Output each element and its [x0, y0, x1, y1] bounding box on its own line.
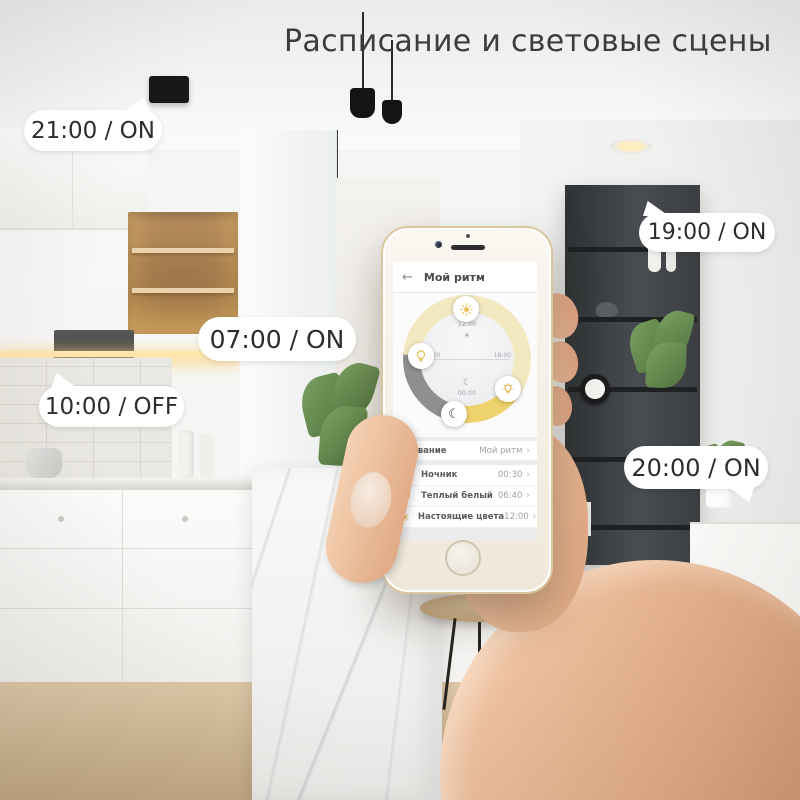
scene-time: 00:30 [498, 470, 523, 480]
home-button[interactable] [445, 540, 481, 576]
pendant-light-2 [382, 100, 402, 124]
countertop [0, 478, 252, 490]
phone-screen: ← Мой ритм 12:00 ☀ 06:00 18:00 ☾ 00:00 [393, 262, 537, 540]
chevron-right-icon: › [526, 446, 530, 456]
sun-icon [460, 303, 473, 316]
scene-time: 12:00 [504, 512, 529, 522]
list-footer [393, 528, 537, 540]
app-header: ← Мой ритм [393, 262, 537, 293]
counter-jar [178, 430, 194, 478]
scene-row-true-colors[interactable]: ☀ Настоящие цвета 12:00 › [393, 507, 537, 528]
scene-label: Настоящие цвета [418, 512, 504, 522]
callout-2100: 21:00 / ON [24, 110, 162, 151]
ceiling-spot-light [149, 76, 189, 103]
phone: ← Мой ритм 12:00 ☀ 06:00 18:00 ☾ 00:00 [381, 226, 553, 594]
bulb-icon [415, 350, 427, 362]
dial-knob-warm-white[interactable] [408, 343, 434, 369]
dial-horizon-line [424, 359, 510, 360]
sun-icon: ☀ [420, 331, 514, 340]
name-value: Мой ритм [479, 446, 522, 456]
callout-2000: 20:00 / ON [624, 446, 768, 489]
promo-image: ← Мой ритм 12:00 ☀ 06:00 18:00 ☾ 00:00 [0, 0, 800, 800]
chevron-right-icon: › [533, 512, 537, 522]
bulb-rays-icon [502, 383, 514, 395]
chevron-right-icon: › [526, 491, 530, 501]
scene-row-warm-white[interactable]: Теплый белый 06:40 › [393, 486, 537, 507]
callout-label: 19:00 / ON [648, 220, 767, 245]
thumb-nail [345, 468, 396, 531]
drawer-knob [182, 516, 188, 522]
pendant-light [350, 88, 375, 118]
app-title: Мой ритм [424, 271, 485, 284]
kettle [26, 448, 62, 478]
chevron-right-icon: › [526, 470, 530, 480]
dial-knob-true-colors[interactable] [453, 296, 479, 322]
drawer-line [0, 548, 252, 549]
proximity-sensor [466, 234, 470, 238]
callout-1900: 19:00 / ON [639, 213, 775, 252]
shelf-board [132, 288, 234, 293]
counter-jar [200, 434, 214, 478]
scene-label: Теплый белый [421, 491, 498, 501]
scene-label: Ночник [421, 470, 498, 480]
dial-label-evening: 18:00 [494, 352, 511, 359]
drawer-line [0, 608, 252, 609]
base-cabinets [0, 490, 252, 686]
dial-knob-evening[interactable] [495, 376, 521, 402]
dial-label-noon: 12:00 [420, 321, 514, 328]
callout-label: 07:00 / ON [210, 325, 345, 354]
callout-label: 21:00 / ON [31, 118, 155, 144]
alarm-clock [580, 374, 610, 404]
callout-0700: 07:00 / ON [198, 317, 356, 361]
dial-knob-night-light[interactable]: ☾ [441, 401, 467, 427]
bird-figurine [596, 302, 618, 317]
drawer-knob [58, 516, 64, 522]
callout-label: 10:00 / OFF [45, 394, 178, 420]
callout-label: 20:00 / ON [631, 454, 760, 482]
cabinet-seam [122, 490, 123, 686]
scene-time: 06:40 [498, 491, 523, 501]
houseplant-right [630, 308, 696, 390]
moon-icon: ☾ [448, 408, 460, 421]
callout-1000: 10:00 / OFF [39, 386, 184, 427]
front-camera [435, 241, 442, 248]
back-icon[interactable]: ← [402, 271, 413, 284]
wood-shelf-unit [128, 212, 238, 334]
daily-rhythm-dial: 12:00 ☀ 06:00 18:00 ☾ 00:00 ☾ [393, 293, 537, 441]
shelf-board [132, 248, 234, 253]
page-title: Расписание и световые сцены [284, 24, 772, 59]
earpiece-speaker [451, 245, 485, 250]
recessed-light [610, 139, 652, 154]
